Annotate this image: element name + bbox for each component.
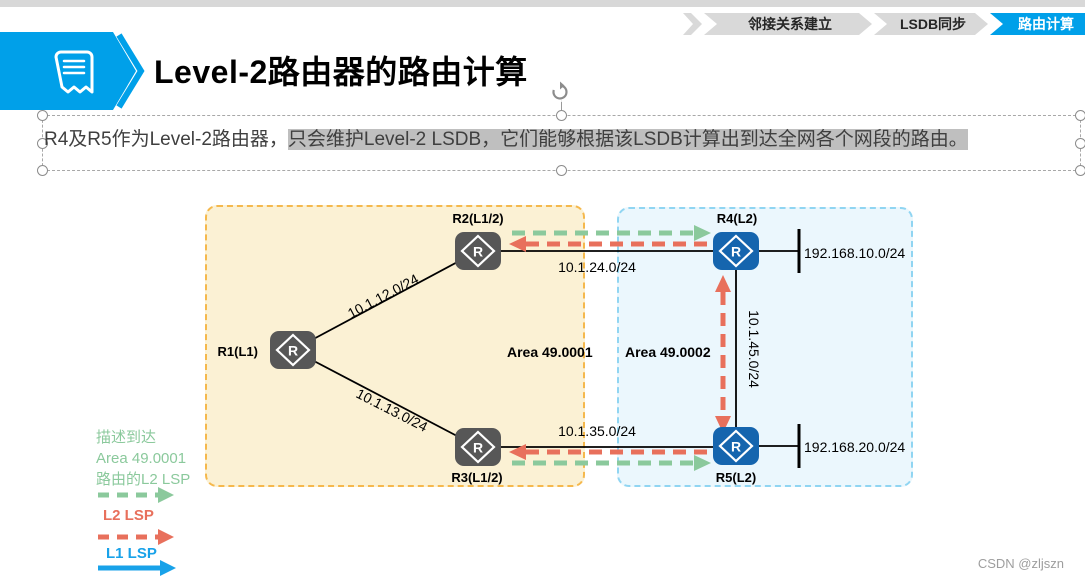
legend-red-label: L2 LSP [103,507,154,524]
process-steps: 邻接关系建立 LSDB同步 路由计算 [683,13,1085,35]
selection-handle-bottom-center[interactable] [556,165,567,176]
selection-handle-bottom-right[interactable] [1075,165,1085,176]
router-r1[interactable]: R [270,331,316,369]
router-diamond-icon: R [270,331,316,369]
body-text-normal: R4及R5作为Level-2路由器， [44,129,288,150]
step-label: LSDB同步 [900,14,966,34]
rotate-handle-icon[interactable] [549,81,571,103]
router-label-r4: R4(L2) [690,211,784,226]
page-title[interactable]: Level-2路由器的路由计算 [154,47,528,93]
slide-canvas: 邻接关系建立 LSDB同步 路由计算 Level-2路由器的路由计算 [0,0,1085,582]
selection-handle-top-right[interactable] [1075,110,1085,121]
svg-text:R: R [731,244,741,260]
legend-green-line3: 路由的L2 LSP [96,469,190,490]
subnet-label-10-1-35: 10.1.35.0/24 [553,423,641,439]
router-label-r1: R1(L1) [200,344,258,359]
body-textbox[interactable]: R4及R5作为Level-2路由器，只会维护Level-2 LSDB，它们能够根… [44,126,968,154]
selection-handle-bottom-left[interactable] [37,165,48,176]
top-strip [0,0,1085,7]
router-diamond-icon: R [713,232,759,270]
svg-text:R: R [473,440,483,456]
router-label-r3: R3(L1/2) [429,470,525,485]
svg-text:R: R [731,439,741,455]
step-tab-adjacency[interactable]: 邻接关系建立 [704,13,872,35]
router-r2[interactable]: R [455,232,501,270]
stub-label-192-168-10: 192.168.10.0/24 [804,245,905,261]
banner-pentagon [0,32,136,110]
router-r3[interactable]: R [455,428,501,466]
selection-handle-top-left[interactable] [37,110,48,121]
svg-text:R: R [288,343,298,359]
router-r4[interactable]: R [713,232,759,270]
area-label-49-0001: Area 49.0001 [507,344,593,360]
router-diamond-icon: R [455,428,501,466]
router-diamond-icon: R [713,427,759,465]
legend-green-line1: 描述到达 [96,427,190,448]
legend-green-line2: Area 49.0001 [96,448,190,469]
selection-handle-mid-right[interactable] [1075,138,1085,149]
step-label: 邻接关系建立 [748,14,832,34]
router-label-r2: R2(L1/2) [430,211,526,226]
selection-handle-top-center[interactable] [556,110,567,121]
body-text-highlighted: 只会维护Level-2 LSDB，它们能够根据该LSDB计算出到达全网各个网段的… [288,129,968,150]
title-banner [0,32,150,110]
area-label-49-0002: Area 49.0002 [625,344,711,360]
router-r5[interactable]: R [713,427,759,465]
chevron-lead-icon [683,13,702,35]
svg-text:R: R [473,244,483,260]
subnet-label-10-1-45: 10.1.45.0/24 [746,305,762,393]
step-tab-route-calc[interactable]: 路由计算 [990,13,1085,35]
router-label-r5: R5(L2) [689,470,783,485]
step-tab-lsdb-sync[interactable]: LSDB同步 [874,13,988,35]
subnet-label-10-1-24: 10.1.24.0/24 [553,259,641,275]
step-label: 路由计算 [1018,14,1074,34]
watermark: CSDN @zljszn [978,556,1064,571]
legend-red-arrow [98,529,174,545]
legend-blue-arrow [98,560,176,576]
stub-label-192-168-20: 192.168.20.0/24 [804,439,905,455]
legend-blue-label: L1 LSP [106,545,157,562]
legend-green-label: 描述到达 Area 49.0001 路由的L2 LSP [96,427,190,490]
router-diamond-icon: R [455,232,501,270]
